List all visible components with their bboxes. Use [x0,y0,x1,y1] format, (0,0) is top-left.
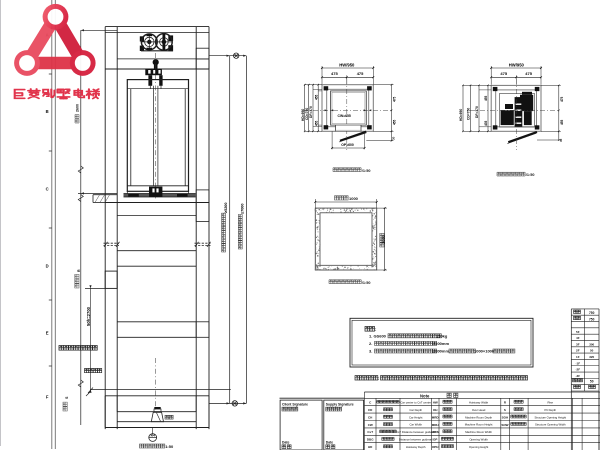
svg-text:750: 750 [589,317,595,321]
svg-text:2600: 2600 [76,104,80,112]
svg-text:475: 475 [560,96,564,102]
svg-text:Car Height: Car Height [409,415,423,419]
svg-text:OP=600: OP=600 [341,143,354,147]
svg-text:D: D [46,264,49,269]
svg-text:1000: 1000 [380,234,385,244]
svg-text:E: E [46,331,49,336]
svg-text:Hoistway Depth: Hoistway Depth [406,445,426,449]
svg-text:OPH: OPH [432,445,439,449]
svg-text:Car center to CsT center: Car center to CsT center [400,401,431,405]
svg-text:1000×1000: 1000×1000 [474,349,495,354]
svg-text:Structure Opening Width: Structure Opening Width [535,423,566,427]
svg-text:150kg: 150kg [436,333,448,338]
svg-text:S: S [504,408,506,412]
svg-text:DF=370: DF=370 [475,106,479,118]
svg-text:OH: OH [433,408,438,412]
svg-text:5F: 5F [576,330,580,334]
svg-text:2F: 2F [576,349,580,353]
svg-text:455: 455 [560,119,564,125]
svg-text:3200mm: 3200mm [433,341,449,346]
svg-text:-3F: -3F [576,374,581,378]
svg-text:DF=370: DF=370 [309,106,313,118]
svg-text:Hoistway Width: Hoistway Width [469,401,489,405]
svg-text:MRH: MRH [432,423,439,427]
svg-text:OP: OP [433,438,437,442]
svg-text:SOW: SOW [501,423,508,427]
svg-text:/1:50: /1:50 [526,173,535,177]
svg-text:R4: R4 [151,434,155,438]
svg-text:1. GS600: 1. GS600 [369,333,387,338]
svg-text:4F: 4F [576,336,580,340]
svg-text:50: 50 [590,349,594,353]
svg-text:50: 50 [590,379,594,383]
svg-text:3F: 3F [576,342,580,346]
svg-text:/1:50: /1:50 [362,281,371,285]
svg-text:750: 750 [589,311,595,315]
svg-text:Over Head: Over Head [472,408,486,412]
svg-text:Client Signature: Client Signature [282,402,308,406]
svg-text:CsT Distance between guiderail: CsT Distance between guiderail [396,430,436,434]
svg-text:1000: 1000 [349,196,359,201]
svg-text:Note: Note [420,393,430,398]
svg-text:CW=655: CW=655 [338,114,351,118]
svg-text:475: 475 [392,96,396,102]
svg-text:CW: CW [368,423,373,427]
svg-text::: : [378,376,379,381]
svg-text:300: 300 [589,342,594,346]
svg-text:≥7000: ≥7000 [241,203,245,214]
svg-text:475: 475 [331,71,338,76]
svg-text:-2F: -2F [576,368,581,372]
svg-text:C: C [46,187,49,192]
svg-text:Car Depth: Car Depth [409,408,422,412]
svg-text:MRD: MRD [432,415,440,419]
svg-text:HW: HW [433,401,438,405]
svg-text:455: 455 [314,94,318,100]
svg-text:CD=750: CD=750 [467,108,471,120]
svg-text:30: 30 [391,136,395,140]
svg-text:475: 475 [525,71,532,76]
svg-text:1F: 1F [576,355,580,359]
svg-text:Pit Depth: Pit Depth [545,408,557,412]
svg-text:Opening Height: Opening Height [469,445,489,449]
svg-text:Machine Room Depth: Machine Room Depth [465,415,492,419]
svg-text:320: 320 [589,355,594,359]
svg-text:DBG: DBG [367,438,374,442]
svg-text:Car Width: Car Width [409,423,422,427]
svg-text:475: 475 [357,71,364,76]
svg-text:Structure Opening Height: Structure Opening Height [535,415,567,419]
svg-text:3.: 3. [369,349,372,354]
svg-text:2800mm.: 2800mm. [433,349,450,354]
svg-text:F: F [46,395,49,400]
svg-text:Machine Room Height: Machine Room Height [465,423,493,427]
svg-text:HW/950: HW/950 [339,62,355,67]
svg-text:Rise: Rise [547,401,553,405]
svg-text:475: 475 [500,71,507,76]
svg-text:CsT: CsT [367,430,373,434]
svg-text:Date: Date [282,441,289,445]
svg-text:B: B [46,109,49,114]
svg-text:HD=950: HD=950 [459,109,463,121]
svg-text:455: 455 [484,95,488,101]
svg-text:Date: Date [326,441,333,445]
svg-text:Distance between guiderail: Distance between guiderail [399,438,433,442]
svg-text:CH: CH [368,415,372,419]
svg-text:1:50: 1:50 [165,444,174,449]
svg-text:R: R [77,269,81,272]
svg-text:30: 30 [559,138,563,142]
svg-text:/1:50: /1:50 [362,169,371,173]
svg-text:≥5200: ≥5200 [224,202,228,213]
svg-text:455: 455 [314,120,318,126]
svg-text:-1F: -1F [576,361,581,365]
svg-text:Opening Width: Opening Width [469,438,488,442]
svg-text:435: 435 [484,120,488,126]
svg-text:455: 455 [392,119,396,125]
svg-text:HW/950: HW/950 [509,62,525,67]
svg-text:Supply Signature: Supply Signature [326,402,354,406]
svg-text:Machine Room Width: Machine Room Width [465,430,492,434]
svg-text:2.: 2. [369,341,372,346]
svg-text:SOH: SOH [502,415,509,419]
